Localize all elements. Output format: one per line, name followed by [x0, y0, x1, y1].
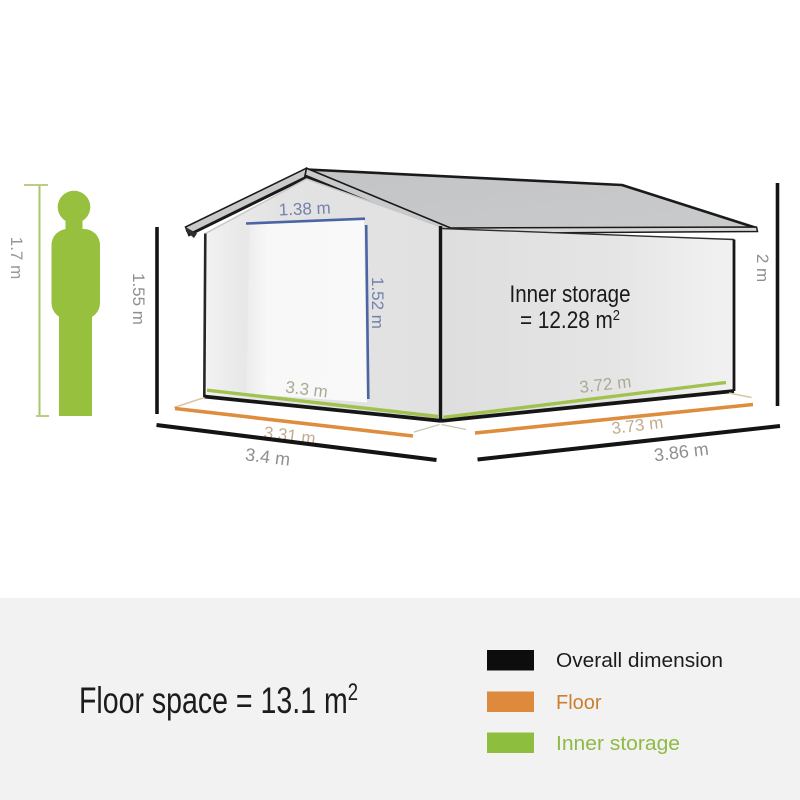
- svg-text:1.38 m: 1.38 m: [278, 198, 331, 219]
- svg-text:Inner storage: Inner storage: [510, 281, 631, 308]
- svg-text:Floor space = 13.1 m2: Floor space = 13.1 m2: [79, 679, 358, 721]
- svg-text:1.52 m: 1.52 m: [368, 277, 387, 329]
- svg-text:3.86 m: 3.86 m: [653, 439, 710, 466]
- svg-text:Inner storage: Inner storage: [556, 733, 680, 755]
- svg-text:1.7 m: 1.7 m: [7, 237, 26, 280]
- svg-text:= 12.28 m2: = 12.28 m2: [520, 307, 620, 334]
- svg-text:1.55 m: 1.55 m: [129, 273, 148, 325]
- svg-text:Floor: Floor: [556, 692, 602, 714]
- svg-text:3.4 m: 3.4 m: [244, 444, 291, 469]
- svg-text:2 m: 2 m: [753, 254, 772, 282]
- svg-text:Overall dimension: Overall dimension: [556, 650, 723, 672]
